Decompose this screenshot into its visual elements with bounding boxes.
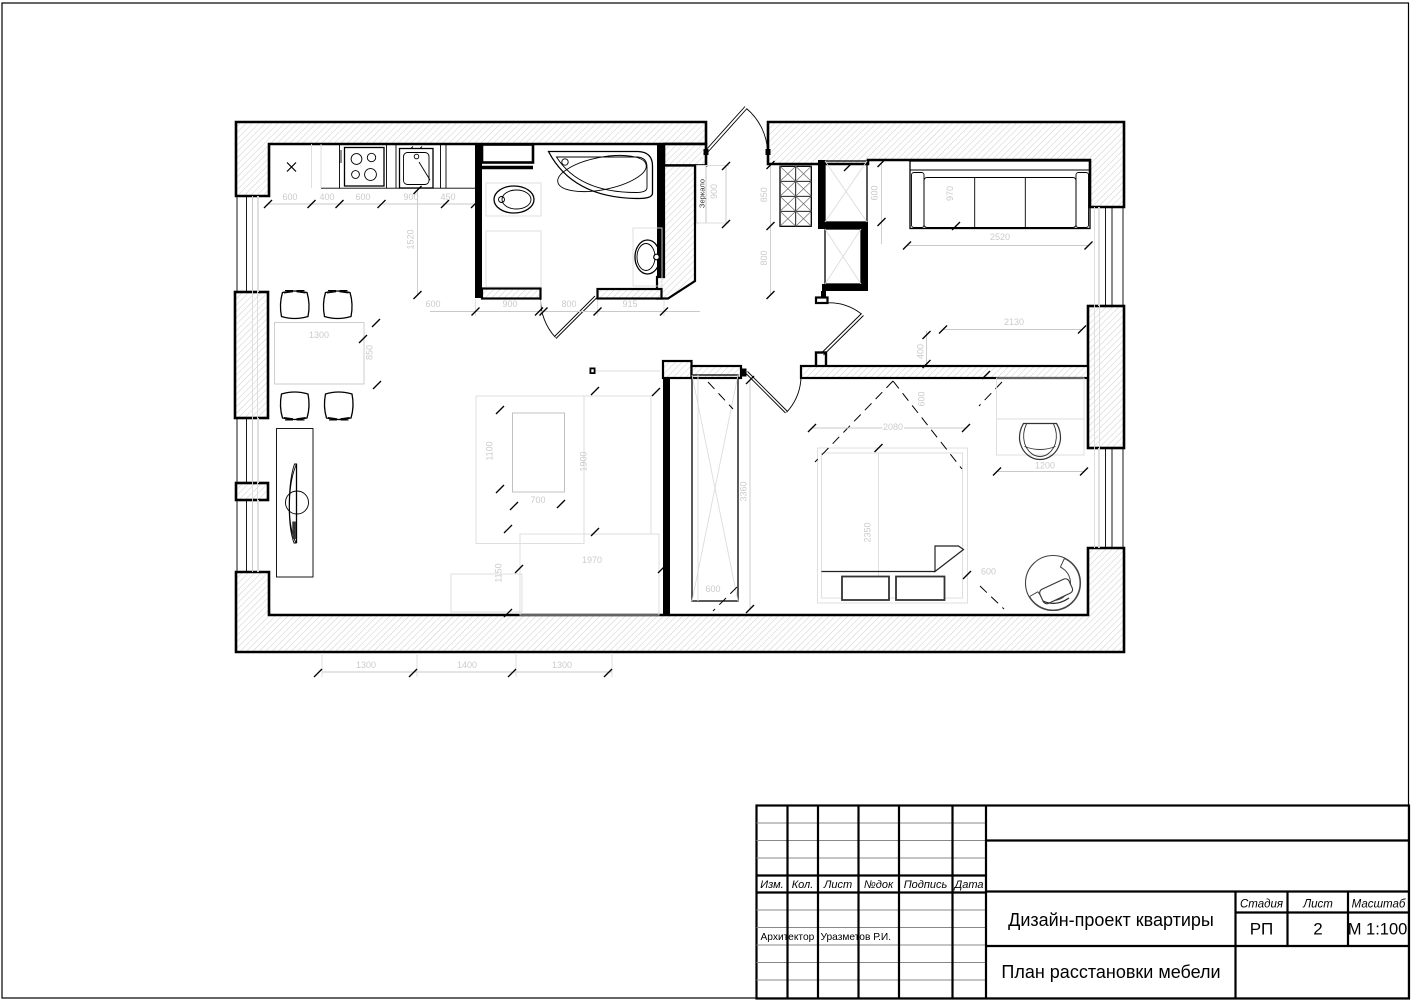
- svg-text:Лист: Лист: [1302, 899, 1333, 911]
- svg-text:850: 850: [759, 187, 769, 202]
- svg-text:970: 970: [945, 186, 955, 201]
- svg-text:Лист: Лист: [823, 879, 852, 891]
- svg-text:600: 600: [425, 299, 440, 309]
- svg-text:Подпись: Подпись: [904, 879, 948, 891]
- svg-text:Масштаб: Масштаб: [1352, 899, 1406, 911]
- svg-text:600: 600: [981, 567, 996, 577]
- svg-text:Зеркало: Зеркало: [698, 179, 707, 208]
- svg-text:Стадия: Стадия: [1240, 899, 1283, 911]
- svg-text:1970: 1970: [582, 555, 602, 565]
- svg-text:600: 600: [917, 391, 927, 406]
- svg-text:450: 450: [440, 192, 455, 202]
- svg-text:М 1:100: М 1:100: [1348, 921, 1408, 939]
- svg-text:900: 900: [403, 192, 418, 202]
- svg-text:Кол.: Кол.: [792, 879, 814, 891]
- svg-text:1150: 1150: [494, 563, 504, 582]
- svg-text:900: 900: [709, 184, 719, 199]
- svg-text:План расстановки мебели: План расстановки мебели: [1001, 962, 1220, 982]
- svg-text:3360: 3360: [739, 481, 749, 501]
- svg-text:400: 400: [319, 192, 334, 202]
- svg-text:1300: 1300: [356, 660, 376, 670]
- svg-text:600: 600: [870, 185, 880, 200]
- svg-text:850: 850: [365, 345, 375, 360]
- svg-text:1900: 1900: [579, 451, 589, 471]
- svg-text:1300: 1300: [552, 660, 572, 670]
- svg-text:1300: 1300: [309, 330, 329, 340]
- svg-text:600: 600: [282, 192, 297, 202]
- svg-text:1100: 1100: [485, 441, 495, 460]
- svg-text:800: 800: [561, 299, 576, 309]
- svg-text:1400: 1400: [457, 660, 477, 670]
- svg-text:Изм.: Изм.: [760, 879, 783, 891]
- svg-text:2: 2: [1313, 920, 1322, 939]
- svg-text:600: 600: [705, 584, 720, 594]
- svg-text:2520: 2520: [990, 232, 1010, 242]
- svg-text:600: 600: [355, 192, 370, 202]
- svg-text:2080: 2080: [883, 422, 903, 432]
- svg-text:Архитектор: Архитектор: [761, 932, 815, 943]
- svg-text:900: 900: [502, 299, 517, 309]
- svg-text:400: 400: [916, 344, 926, 359]
- svg-text:№док: №док: [864, 879, 894, 891]
- svg-text:Дизайн-проект квартиры: Дизайн-проект квартиры: [1008, 910, 1214, 930]
- svg-text:915: 915: [622, 299, 637, 309]
- svg-text:1200: 1200: [1035, 461, 1055, 471]
- svg-text:2350: 2350: [863, 522, 873, 542]
- svg-text:700: 700: [530, 495, 545, 505]
- svg-text:1520: 1520: [406, 229, 416, 249]
- svg-text:2130: 2130: [1004, 317, 1024, 327]
- svg-text:РП: РП: [1250, 920, 1274, 939]
- svg-text:800: 800: [759, 250, 769, 265]
- svg-text:Уразметов Р.И.: Уразметов Р.И.: [821, 932, 892, 943]
- svg-text:Дата: Дата: [952, 879, 983, 891]
